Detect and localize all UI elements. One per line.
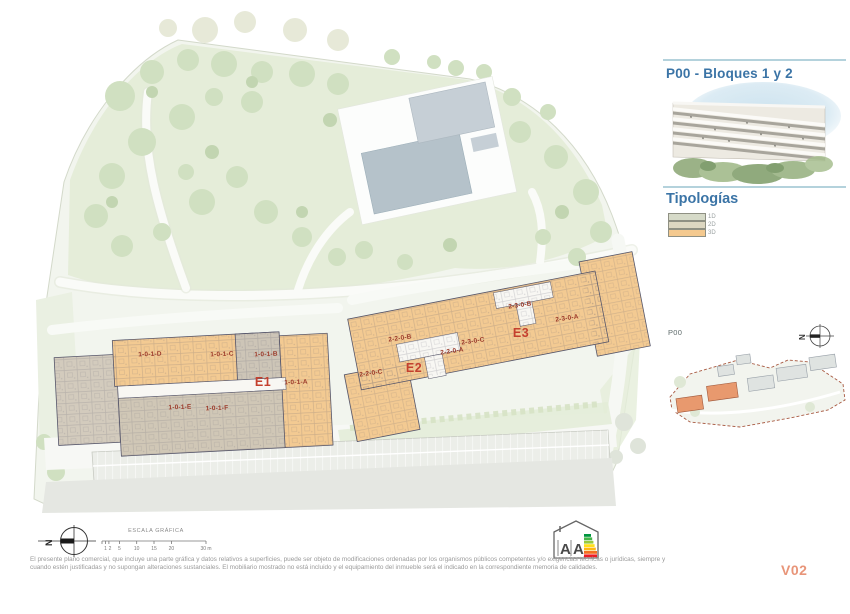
legend-row-1d: 1D	[668, 213, 716, 221]
block-label-e2: E2	[406, 361, 422, 375]
north-label: N	[44, 540, 54, 547]
scale-tick: 20	[169, 546, 175, 552]
north-compass: N	[38, 522, 96, 560]
block-label-e3: E3	[513, 326, 529, 340]
scale-tick: 5	[118, 546, 121, 552]
typologies-legend: 1D 2D 3D	[668, 213, 716, 237]
legend-swatch-2d	[668, 221, 706, 229]
unit-label: 1-0-1-B	[254, 351, 278, 359]
scale-tick: 2	[109, 546, 112, 552]
minimap-north-compass: N	[798, 324, 834, 348]
unit-label: 1-0-1-A	[284, 379, 308, 387]
panel-divider-top	[663, 59, 846, 61]
scale-tick: 1	[104, 546, 107, 552]
version-label: V02	[781, 562, 807, 578]
panel-divider-bottom	[663, 186, 846, 188]
unit-label: 1-0-1-E	[168, 404, 191, 412]
unit-label: 1-0-1-C	[210, 351, 234, 359]
legend-swatch-3d	[668, 229, 706, 237]
minimap-site-boundary	[670, 360, 845, 427]
energy-certificate-icon: A A	[551, 518, 601, 560]
scale-tick: 10	[134, 546, 140, 552]
disclaimer-text: El presente plano comercial, que incluye…	[30, 556, 666, 571]
unit-label: 1-0-1-F	[206, 405, 229, 413]
legend-label: 2D	[708, 222, 716, 228]
unit-label: 1-0-1-D	[138, 351, 162, 359]
legend-row-2d: 2D	[668, 221, 716, 229]
scale-tick: 30 m	[200, 546, 211, 552]
scale-heading: ESCALA GRÁFICA	[98, 528, 214, 534]
disclaimer-line-1: El presente plano comercial, que incluye…	[30, 556, 666, 564]
disclaimer-line-2: cuando estén justificadas y no supongan …	[30, 564, 666, 572]
legend-row-3d: 3D	[668, 229, 716, 237]
vegetation	[673, 156, 833, 184]
legend-swatch-1d	[668, 213, 706, 221]
typologies-heading: Tipologías	[666, 191, 738, 207]
building-rendering	[663, 82, 841, 184]
legend-label: 3D	[708, 230, 716, 236]
legend-label: 1D	[708, 214, 716, 220]
minimap-north-label: N	[798, 334, 807, 340]
block-label-e1: E1	[255, 375, 271, 389]
plan-document-page: 1-0-1-D 1-0-1-C 1-0-1-B 1-0-1-A 1-0-1-E …	[0, 0, 850, 614]
scale-bar: 1 2 5 10 15 20 30 m	[98, 536, 218, 552]
location-minimap: N	[660, 322, 848, 447]
page-title: P00 - Bloques 1 y 2	[666, 66, 793, 81]
scale-tick: 15	[151, 546, 157, 552]
